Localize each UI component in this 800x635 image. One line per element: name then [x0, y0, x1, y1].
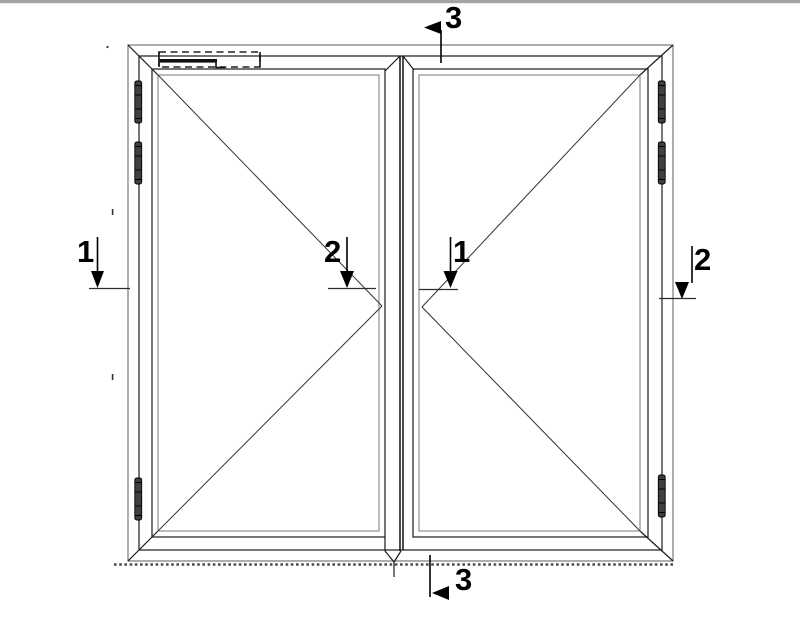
left-leaf-face-rect	[152, 69, 385, 537]
right-leaf-face-rect	[413, 69, 648, 537]
frame-miter-bottom-right	[640, 531, 673, 561]
section-arrow-icon	[444, 271, 458, 288]
section-arrow-icon	[675, 282, 689, 299]
left-leaf-bead-rect	[158, 75, 379, 531]
section-label: 2	[694, 242, 711, 277]
hinge	[658, 81, 665, 123]
section-arrow-icon	[91, 271, 104, 288]
hinge	[135, 142, 142, 184]
top-border-bar	[0, 0, 800, 3]
right-door-leaf	[413, 69, 648, 537]
drawing-canvas: 3 1 2 1 2 3	[0, 0, 800, 635]
section-marker-center-2: 2	[324, 234, 376, 289]
hinge	[135, 81, 142, 123]
door-elevation-drawing: 3 1 2 1 2 3	[0, 0, 800, 635]
section-arrow-icon	[432, 586, 449, 600]
section-marker-bottom-3: 3	[430, 555, 472, 600]
section-marker-left-1: 1	[77, 234, 130, 289]
section-marker-center-1: 1	[419, 234, 470, 290]
section-arrow-icon	[424, 21, 441, 34]
stray-marks	[106, 46, 112, 380]
door-closer-slide-rail	[160, 59, 217, 63]
door-closer	[159, 52, 260, 68]
frame-miter-top-left	[128, 45, 158, 75]
hinge	[658, 475, 665, 517]
right-leaf-bead-rect	[419, 75, 640, 531]
section-label: 3	[445, 0, 462, 35]
section-label: 1	[453, 234, 470, 269]
section-marker-right-2: 2	[659, 242, 711, 299]
hinge	[135, 478, 142, 520]
center-meeting-stiles	[385, 56, 414, 577]
section-arrow-icon	[340, 271, 354, 288]
section-label: 1	[77, 234, 94, 269]
left-door-leaf	[152, 69, 385, 537]
swing-direction-lines-left	[158, 75, 382, 531]
frame-miter-bottom-left	[128, 531, 158, 561]
section-marker-top-3: 3	[424, 0, 462, 63]
frame-miter-top-right	[640, 45, 673, 75]
hinges-left	[135, 81, 142, 520]
swing-direction-lines-right	[422, 75, 640, 531]
section-label: 3	[455, 562, 472, 597]
hinge	[658, 142, 665, 184]
section-label: 2	[324, 234, 341, 269]
